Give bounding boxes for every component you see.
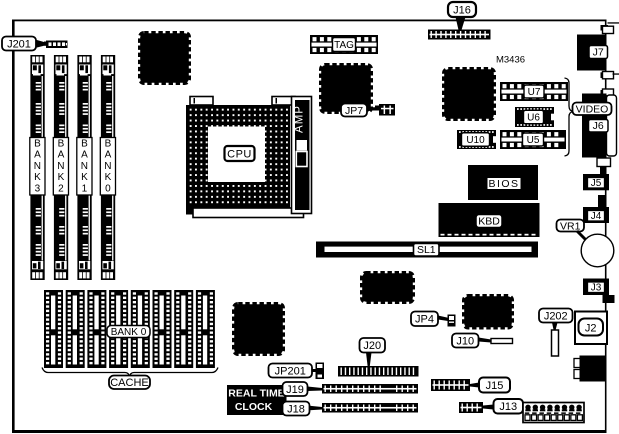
- svg-text:J7: J7: [593, 46, 604, 58]
- svg-text:J18: J18: [287, 403, 305, 415]
- svg-text:M3436: M3436: [496, 55, 525, 66]
- svg-text:U6: U6: [527, 113, 540, 124]
- svg-text:VIDEO: VIDEO: [576, 104, 609, 116]
- svg-text:0: 0: [105, 183, 111, 194]
- svg-text:N: N: [57, 161, 64, 172]
- svg-text:B: B: [34, 139, 41, 150]
- svg-text:CPU: CPU: [227, 148, 252, 160]
- svg-text:AMP: AMP: [294, 105, 306, 133]
- svg-text:A: A: [105, 150, 112, 161]
- svg-text:A: A: [81, 150, 88, 161]
- svg-text:N: N: [34, 161, 41, 172]
- svg-text:3: 3: [35, 183, 41, 194]
- svg-text:B: B: [81, 139, 88, 150]
- svg-text:TAG: TAG: [334, 40, 354, 51]
- svg-text:J19: J19: [286, 384, 304, 396]
- svg-text:CLOCK: CLOCK: [235, 401, 273, 413]
- svg-text:U5: U5: [527, 135, 540, 146]
- svg-text:J6: J6: [593, 120, 604, 132]
- svg-text:BIOS: BIOS: [488, 178, 519, 190]
- svg-text:A: A: [34, 150, 41, 161]
- svg-text:K: K: [81, 172, 88, 183]
- svg-text:J20: J20: [363, 340, 381, 352]
- svg-text:N: N: [104, 161, 111, 172]
- svg-text:KBD: KBD: [478, 216, 500, 228]
- svg-text:REAL TIME: REAL TIME: [228, 387, 284, 399]
- svg-text:J5: J5: [591, 178, 602, 189]
- svg-text:CACHE: CACHE: [110, 377, 149, 389]
- svg-text:J4: J4: [591, 211, 602, 222]
- svg-text:J2: J2: [585, 322, 597, 334]
- svg-text:K: K: [34, 172, 41, 183]
- svg-text:1: 1: [82, 183, 88, 194]
- svg-text:U7: U7: [528, 87, 541, 98]
- svg-text:JP201: JP201: [275, 365, 306, 377]
- svg-text:K: K: [58, 172, 65, 183]
- svg-text:J15: J15: [486, 380, 504, 392]
- svg-text:2: 2: [58, 183, 64, 194]
- svg-text:SL1: SL1: [417, 244, 436, 256]
- svg-text:B: B: [105, 139, 112, 150]
- svg-text:J3: J3: [591, 282, 602, 293]
- svg-text:J201: J201: [7, 38, 31, 50]
- svg-text:A: A: [58, 150, 65, 161]
- svg-text:JP4: JP4: [415, 314, 434, 326]
- svg-text:J10: J10: [456, 335, 474, 347]
- svg-text:N: N: [81, 161, 88, 172]
- svg-text:J13: J13: [499, 401, 517, 413]
- svg-text:B: B: [58, 139, 65, 150]
- svg-text:J16: J16: [453, 4, 471, 16]
- svg-text:JP7: JP7: [345, 105, 363, 117]
- svg-text:K: K: [105, 172, 112, 183]
- svg-text:U10: U10: [466, 135, 485, 146]
- svg-text:J202: J202: [544, 310, 568, 322]
- svg-text:BANK 0: BANK 0: [111, 327, 147, 338]
